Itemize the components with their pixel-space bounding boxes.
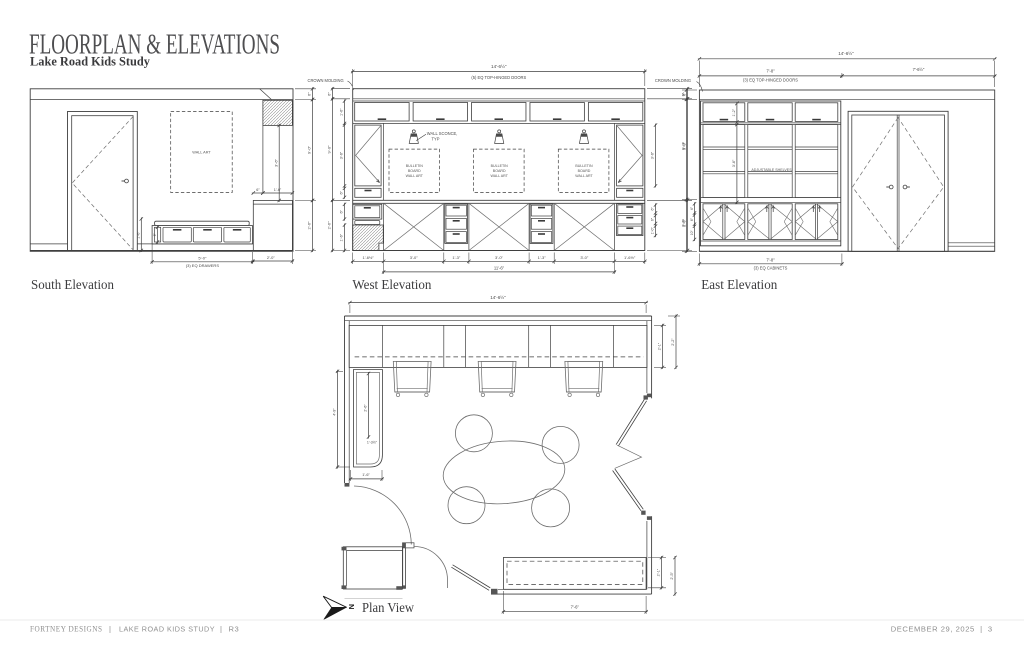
svg-text:WALL ART: WALL ART (406, 174, 424, 178)
svg-text:1'-6": 1'-6" (136, 231, 140, 239)
svg-text:3'-6": 3'-6" (340, 151, 344, 159)
svg-text:WALL ART: WALL ART (192, 151, 211, 155)
svg-text:ADJUSTABLE SHELVES: ADJUSTABLE SHELVES (751, 168, 792, 172)
svg-text:7'-6½": 7'-6½" (913, 67, 925, 72)
svg-text:11'-6": 11'-6" (494, 266, 505, 271)
svg-text:5'-0": 5'-0" (198, 256, 207, 261)
svg-text:10": 10" (690, 230, 694, 236)
svg-text:9'-0": 9'-0" (327, 145, 332, 154)
svg-text:3'-6": 3'-6" (651, 151, 655, 159)
svg-text:TYP: TYP (432, 137, 440, 142)
svg-text:Plan View: Plan View (362, 600, 414, 615)
svg-text:WALL SCONCE,: WALL SCONCE, (427, 131, 458, 136)
svg-text:7'-6": 7'-6" (571, 605, 580, 610)
svg-text:CROWN MOLDING: CROWN MOLDING (308, 78, 344, 83)
svg-text:(3) EQ DRAWERS: (3) EQ DRAWERS (186, 263, 220, 268)
svg-text:4'-9": 4'-9" (333, 408, 337, 416)
svg-text:BOARD: BOARD (578, 169, 591, 173)
svg-text:BULLETIN: BULLETIN (406, 164, 424, 168)
svg-text:1'-3½": 1'-3½" (367, 441, 378, 445)
svg-text:WALL ART: WALL ART (575, 174, 593, 178)
svg-text:2'-6": 2'-6" (681, 218, 686, 227)
svg-text:2'-6": 2'-6" (307, 221, 312, 230)
svg-text:1'-6": 1'-6" (362, 473, 370, 477)
svg-text:1'-3": 1'-3" (452, 255, 461, 260)
svg-text:6": 6" (307, 92, 312, 96)
svg-text:2'-6": 2'-6" (364, 404, 368, 412)
svg-text:1'-2": 1'-2" (732, 108, 736, 116)
svg-text:BULLETIN: BULLETIN (491, 164, 509, 168)
svg-text:6": 6" (327, 92, 332, 96)
svg-text:(3) EQ CABINETS: (3) EQ CABINETS (754, 265, 788, 270)
svg-text:(5) EQ TOP-HINGED DOORS: (5) EQ TOP-HINGED DOORS (471, 75, 526, 80)
svg-text:14'-6½": 14'-6½" (490, 294, 506, 300)
svg-text:3'-0": 3'-0" (580, 255, 589, 260)
svg-text:Lake Road Kids Study: Lake Road Kids Study (30, 55, 151, 69)
svg-text:3'-0": 3'-0" (410, 255, 419, 260)
svg-text:2'-0": 2'-0" (267, 255, 276, 260)
svg-text:BULLETIN: BULLETIN (575, 164, 593, 168)
svg-text:BOARD: BOARD (408, 169, 421, 173)
svg-text:1'-6": 1'-6" (340, 233, 344, 241)
svg-text:West Elevation: West Elevation (352, 277, 431, 292)
svg-text:14'-6½": 14'-6½" (838, 50, 854, 56)
svg-text:3'-6": 3'-6" (732, 159, 736, 167)
svg-text:CROWN MOLDING: CROWN MOLDING (655, 78, 691, 83)
svg-text:3'-6": 3'-6" (273, 158, 278, 167)
svg-text:9'-0": 9'-0" (681, 141, 686, 150)
svg-text:2'-1": 2'-1" (657, 568, 661, 576)
svg-text:South Elevation: South Elevation (31, 277, 114, 292)
svg-text:|: | (109, 625, 111, 634)
svg-text:1'-6": 1'-6" (340, 108, 344, 116)
svg-text:DECEMBER 29, 2025 | 3: DECEMBER 29, 2025 | 3 (891, 625, 993, 634)
svg-text:East Elevation: East Elevation (701, 277, 777, 292)
svg-text:2'-6": 2'-6" (327, 221, 332, 230)
svg-text:1'-6½": 1'-6½" (362, 255, 374, 260)
svg-text:6": 6" (681, 92, 686, 96)
svg-text:(3) EQ TOP-HINGED DOORS: (3) EQ TOP-HINGED DOORS (743, 78, 798, 83)
svg-text:LAKE ROAD KIDS STUDY: LAKE ROAD KIDS STUDY (119, 625, 215, 634)
svg-text:1'-0": 1'-0" (651, 227, 655, 235)
svg-text:7'-8": 7'-8" (766, 257, 775, 262)
svg-text:3'-0": 3'-0" (495, 255, 504, 260)
svg-text:14'-6½": 14'-6½" (491, 63, 507, 69)
svg-text:2'-2": 2'-2" (671, 338, 675, 346)
svg-text:N: N (347, 604, 356, 609)
svg-text:BOARD: BOARD (493, 169, 506, 173)
svg-text:7'-8": 7'-8" (766, 68, 775, 73)
svg-text:1'-6": 1'-6" (274, 188, 282, 192)
svg-text:R3: R3 (229, 625, 240, 634)
svg-text:|: | (220, 625, 222, 634)
svg-text:1'-3": 1'-3" (538, 255, 547, 260)
svg-text:2'-5": 2'-5" (670, 571, 674, 579)
svg-text:1'-6½": 1'-6½" (624, 255, 636, 260)
svg-text:FORTNEY DESIGNS: FORTNEY DESIGNS (30, 624, 103, 634)
svg-text:9'-0": 9'-0" (307, 145, 312, 154)
svg-text:WALL ART: WALL ART (490, 174, 508, 178)
svg-text:2'-1": 2'-1" (658, 342, 662, 350)
